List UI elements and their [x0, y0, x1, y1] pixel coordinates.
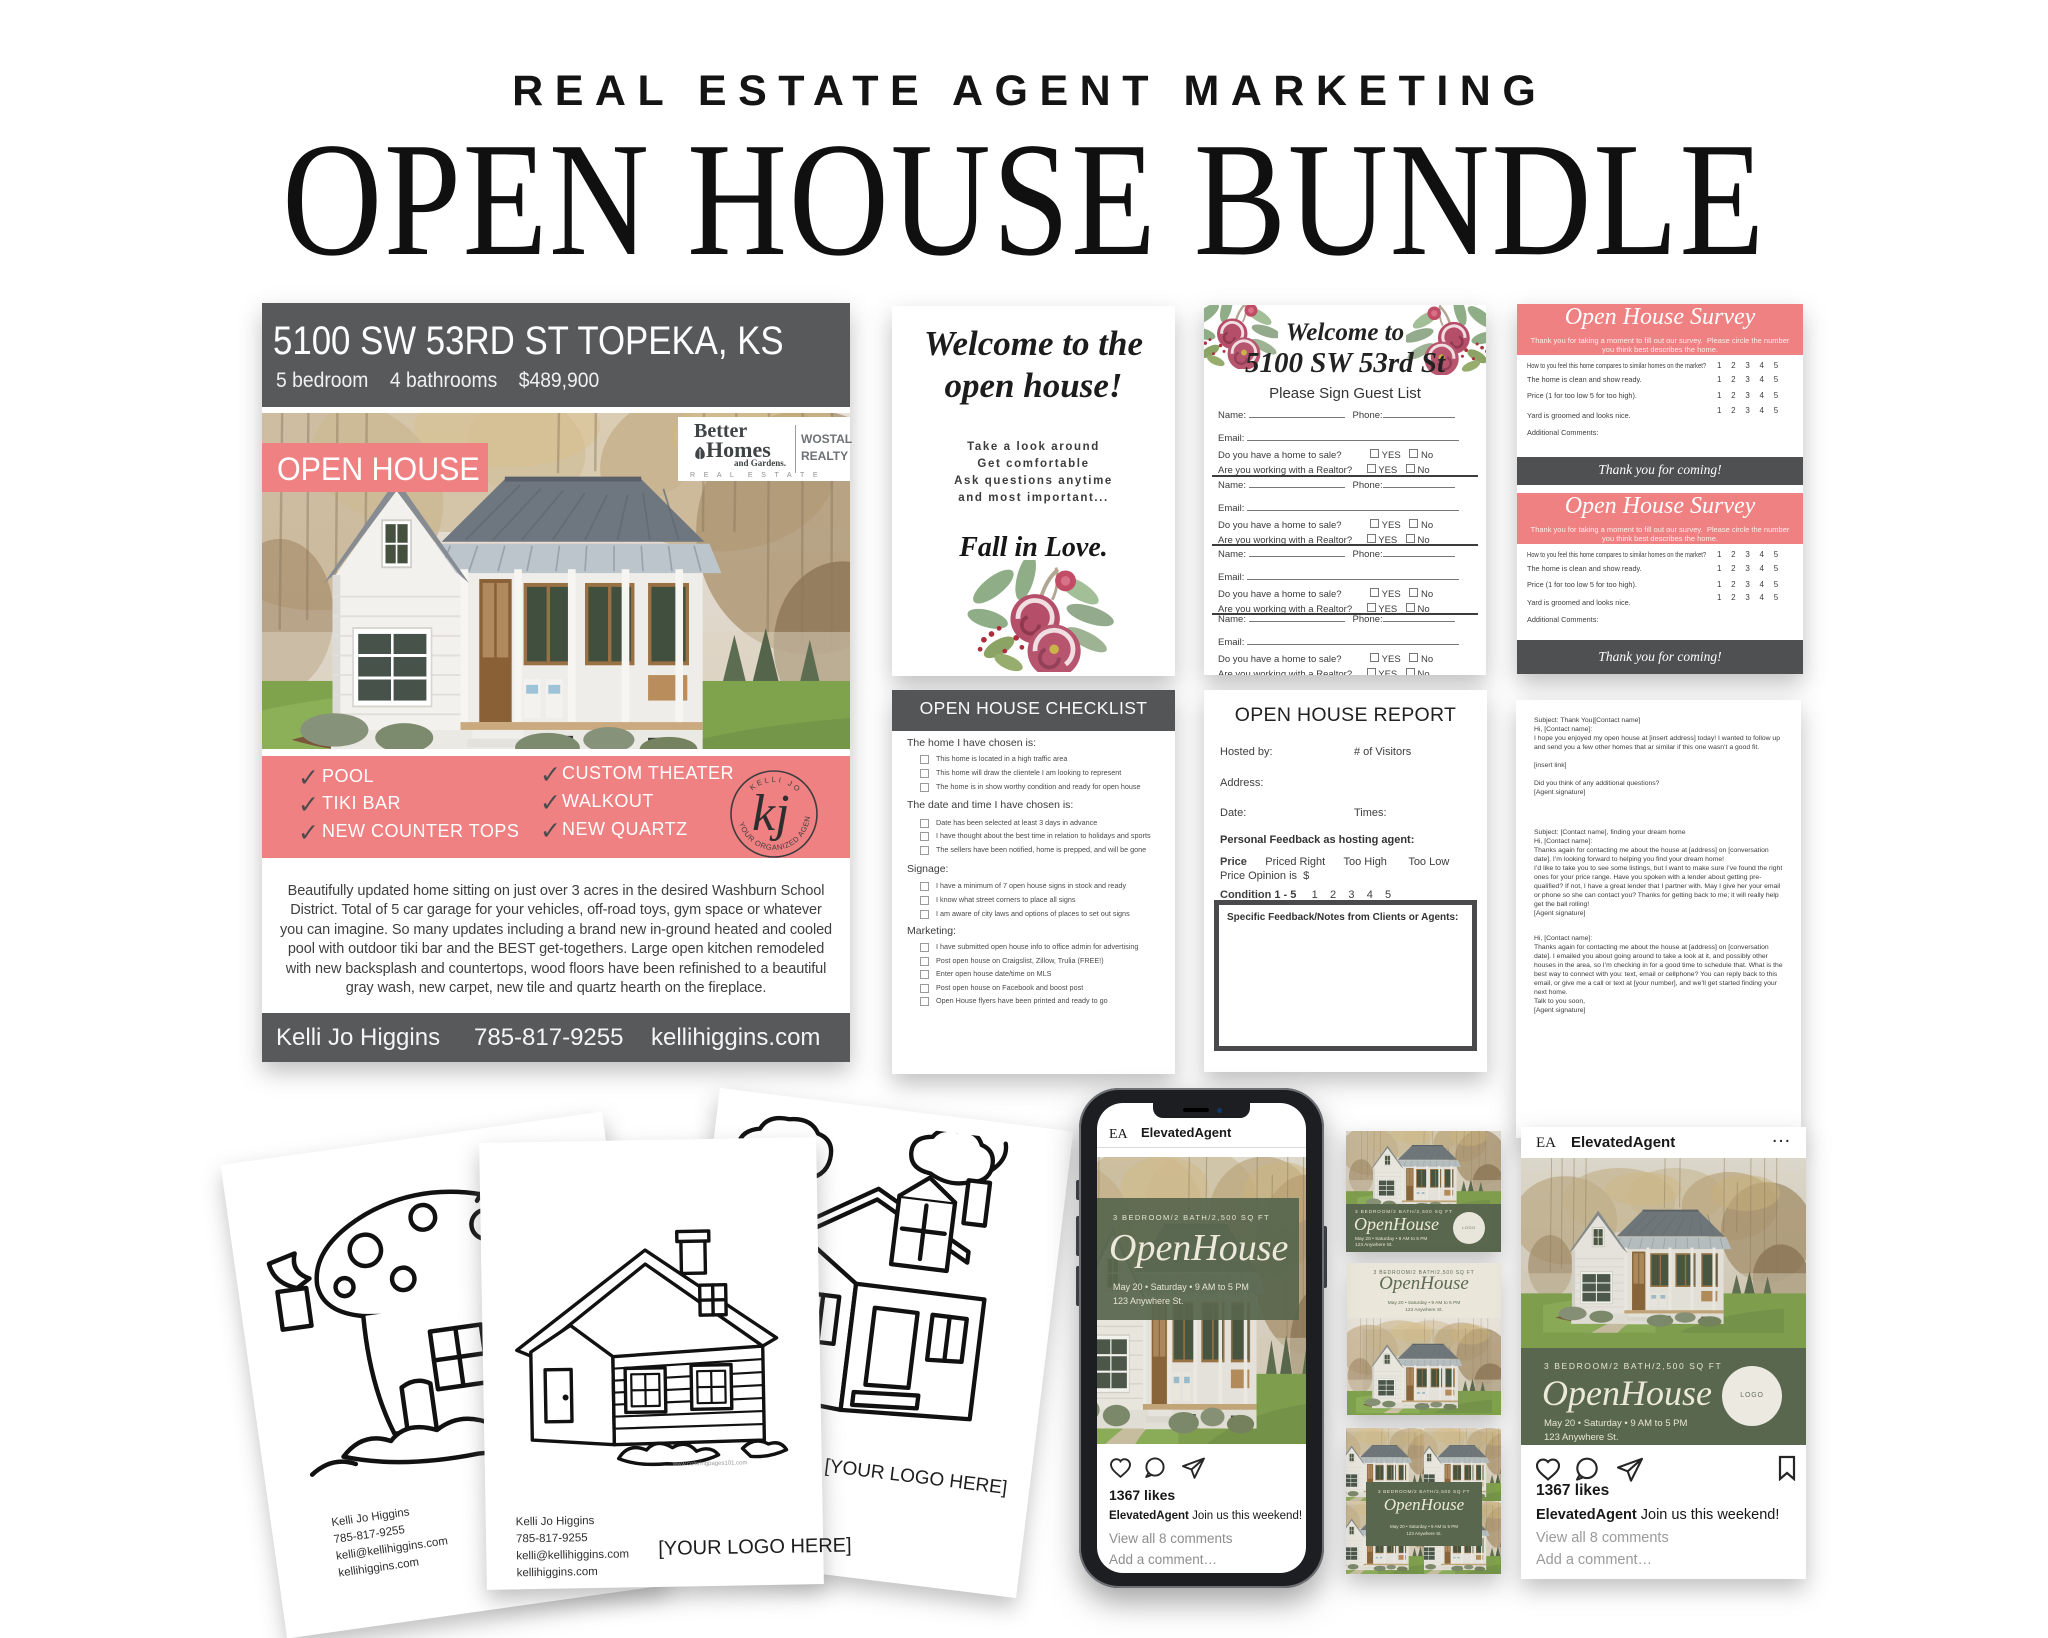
- svg-text:kj: kj: [752, 785, 790, 842]
